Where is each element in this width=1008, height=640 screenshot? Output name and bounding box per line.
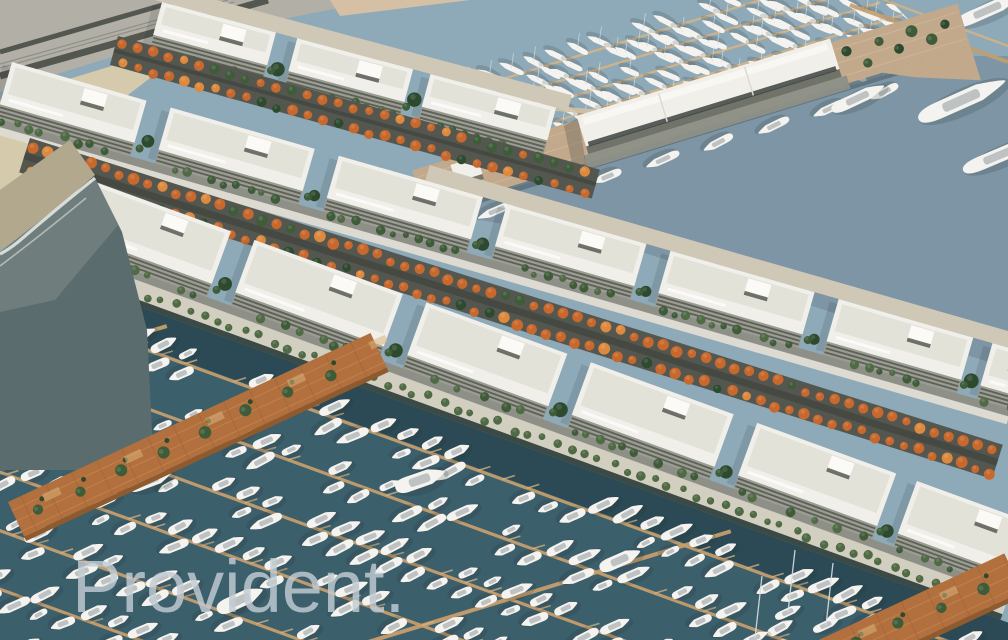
scene-canvas [0,0,1008,640]
marina-aerial-render: Provident. [0,0,1008,640]
